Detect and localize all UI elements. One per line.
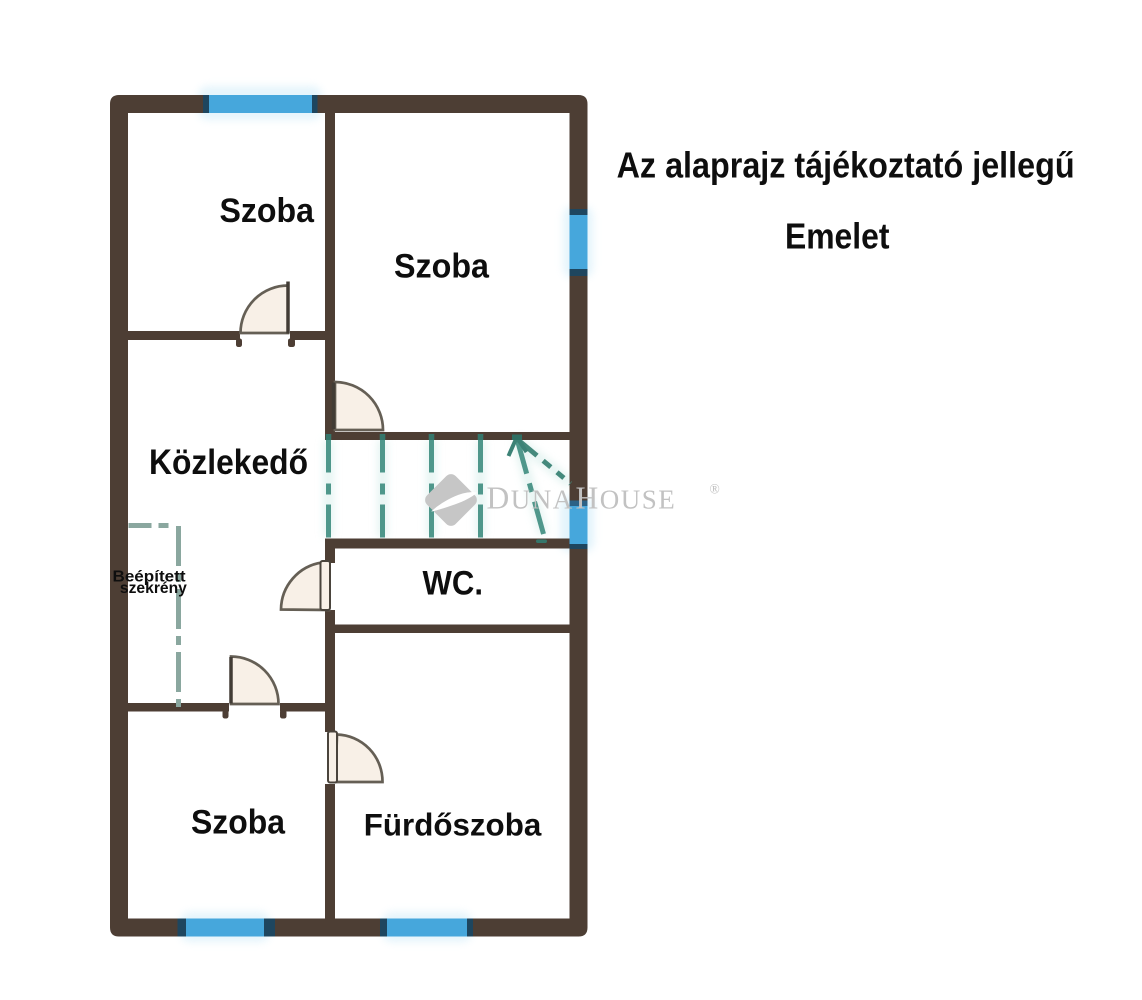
- svg-text:Közlekedő: Közlekedő: [149, 443, 308, 482]
- svg-text:Szoba: Szoba: [191, 804, 286, 842]
- svg-text:Az alaprajz tájékoztató jelleg: Az alaprajz tájékoztató jellegű: [617, 145, 1075, 186]
- svg-text:Szoba: Szoba: [394, 248, 490, 286]
- svg-text:DUNAHOUSE: DUNAHOUSE: [487, 481, 677, 516]
- svg-text:Szoba: Szoba: [219, 192, 314, 230]
- svg-text:szekrény: szekrény: [120, 580, 187, 597]
- svg-text:WC.: WC.: [423, 565, 484, 603]
- svg-text:Emelet: Emelet: [785, 216, 890, 257]
- svg-text:®: ®: [710, 482, 720, 497]
- svg-text:Fürdőszoba: Fürdőszoba: [364, 807, 542, 843]
